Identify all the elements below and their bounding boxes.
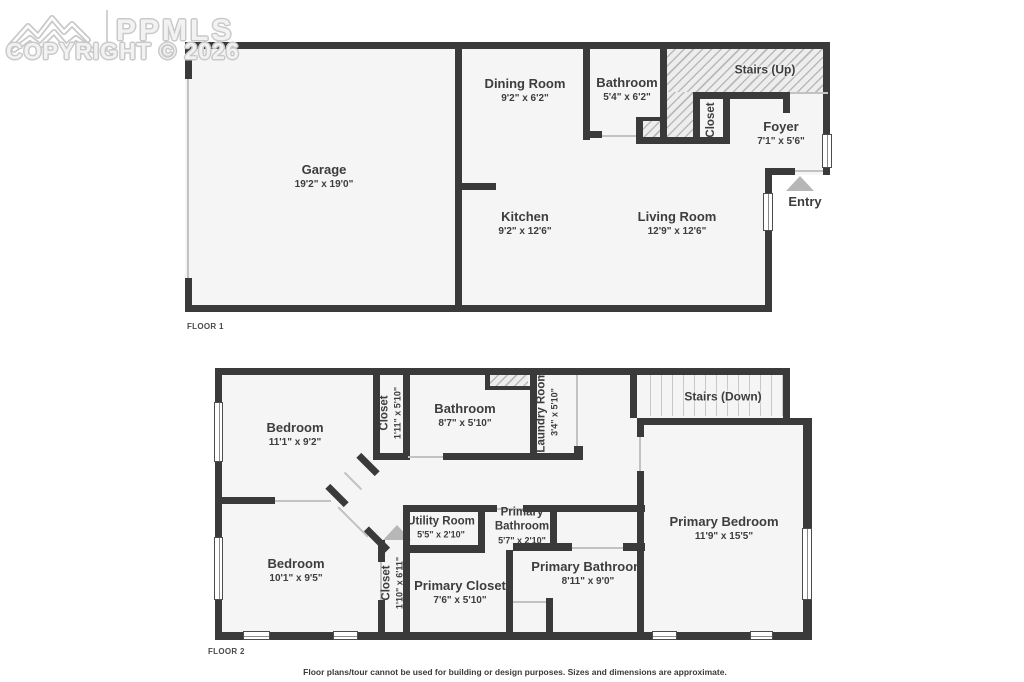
room-name: Stairs (Up)	[735, 63, 796, 78]
wall	[215, 632, 243, 640]
wall	[630, 368, 637, 418]
room-label-bedroom-lower: Bedroom 10'1" x 9'5"	[267, 556, 324, 586]
window-mullion	[653, 636, 676, 637]
wall	[637, 418, 810, 425]
opening-line	[790, 92, 828, 94]
room-dims: 5'7" x 2'10"	[476, 535, 568, 546]
room-dims: 11'9" x 15'5"	[669, 531, 778, 544]
wall	[443, 453, 583, 460]
wall	[373, 453, 408, 460]
room-name: Living Room	[638, 209, 717, 225]
room-name: Closet	[380, 557, 394, 609]
room-name: Bedroom	[267, 556, 324, 572]
room-name: Entry	[788, 194, 821, 210]
room-label-utility-room: Utility Room 5'5" x 2'10"	[407, 515, 475, 542]
wall	[823, 42, 830, 134]
wall	[765, 231, 772, 312]
wall	[583, 42, 590, 140]
room-label-primary-bedroom: Primary Bedroom 11'9" x 15'5"	[669, 514, 778, 544]
room-dims: 19'2" x 19'0"	[295, 179, 354, 192]
room-name: Closet	[378, 387, 392, 439]
room-dims: 12'9" x 12'6"	[638, 226, 717, 239]
window	[763, 193, 773, 231]
room-dims: 5'5" x 2'10"	[407, 530, 475, 541]
room-label-laundry-room: Laundry Room 3'4" x 5'10"	[535, 371, 562, 452]
window-mullion	[807, 529, 808, 599]
room-label-primary-bathroom-small: Primary Bathroom 5'7" x 2'10"	[476, 506, 568, 547]
understairs-hatch	[643, 121, 660, 137]
room-dims: 5'4" x 6'2"	[596, 92, 657, 105]
window-mullion	[244, 636, 269, 637]
door-opening	[572, 547, 623, 549]
wall	[637, 425, 644, 437]
floorplan-page: PPMLS COPYRIGHT © 2026	[0, 0, 1024, 682]
entry-door-opening	[795, 170, 823, 172]
stairs-up-hatch-lower	[667, 92, 693, 137]
wall	[215, 497, 275, 504]
wall	[783, 92, 790, 113]
room-label-entry: Entry	[788, 194, 821, 210]
wall	[185, 305, 772, 312]
wall	[403, 545, 485, 553]
room-name: Closet	[704, 102, 718, 137]
entry-arrow-icon	[786, 176, 814, 191]
wall	[462, 183, 496, 190]
room-name: Dining Room	[485, 76, 566, 92]
wall	[765, 168, 795, 175]
room-label-stairs-down: Stairs (Down)	[684, 390, 761, 405]
wall	[660, 42, 667, 140]
wall	[455, 49, 462, 305]
wall	[677, 632, 750, 640]
wall	[546, 598, 553, 633]
wall	[506, 550, 513, 633]
wall	[693, 92, 790, 99]
disclaimer-text: Floor plans/tour cannot be used for buil…	[303, 667, 727, 677]
room-dims: 9'2" x 12'6"	[498, 226, 551, 239]
wall	[215, 368, 790, 375]
room-label-stairs-up: Stairs (Up)	[735, 63, 796, 78]
wall	[765, 175, 772, 193]
window	[243, 631, 270, 640]
window	[802, 528, 812, 600]
room-dims: 1'10" x 6'11"	[395, 557, 406, 609]
room-label-closet-upper: Closet 1'11" x 5'10"	[378, 387, 405, 439]
door-opening	[602, 135, 636, 137]
window-mullion	[768, 194, 769, 230]
room-label-bathroom-f1: Bathroom 5'4" x 6'2"	[596, 75, 657, 105]
window	[214, 537, 223, 600]
room-name: Bathroom	[434, 401, 495, 417]
room-label-bedroom-upper: Bedroom 11'1" x 9'2"	[266, 420, 323, 450]
room-name: Kitchen	[498, 209, 551, 225]
window	[750, 631, 773, 640]
watermark-copyright: COPYRIGHT © 2026	[6, 38, 240, 65]
wall	[358, 632, 652, 640]
floor2-notch	[790, 368, 812, 418]
room-name: Bedroom	[266, 420, 323, 436]
room-name: Primary Bathroom	[531, 559, 644, 575]
wall	[783, 368, 790, 418]
room-name: Stairs (Down)	[684, 390, 761, 405]
room-dims: 11'1" x 9'2"	[266, 437, 323, 450]
room-label-closet-f1: Closet	[704, 102, 718, 137]
room-label-dining-room: Dining Room 9'2" x 6'2"	[485, 76, 566, 106]
room-label-primary-bathroom: Primary Bathroom 8'11" x 9'0"	[531, 559, 644, 589]
wall	[215, 368, 222, 402]
room-label-kitchen: Kitchen 9'2" x 12'6"	[498, 209, 551, 239]
room-dims: 7'6" x 5'10"	[414, 595, 506, 608]
opening-line	[576, 375, 578, 446]
room-dims: 10'1" x 9'5"	[267, 573, 324, 586]
room-dims: 3'4" x 5'10"	[550, 371, 561, 452]
room-name: Bathroom	[596, 75, 657, 91]
window-mullion	[219, 538, 220, 599]
garage-door-line	[187, 79, 189, 278]
window	[822, 134, 832, 168]
door-opening	[639, 437, 641, 471]
window	[214, 402, 223, 462]
window-mullion	[751, 636, 772, 637]
wall	[643, 117, 667, 121]
wall	[574, 446, 583, 460]
wall	[637, 471, 644, 633]
room-name: Utility Room	[407, 515, 475, 529]
wall	[590, 131, 602, 138]
shower-hatch	[490, 375, 528, 386]
wall	[623, 543, 645, 551]
room-name: Garage	[295, 162, 354, 178]
floor1-tag: FLOOR 1	[187, 322, 224, 331]
room-label-living-room: Living Room 12'9" x 12'6"	[638, 209, 717, 239]
room-name: Primary Closet	[414, 578, 506, 594]
room-name: Primary Bathroom	[476, 506, 568, 535]
wall	[485, 386, 533, 390]
room-name: Laundry Room	[535, 371, 549, 452]
room-label-primary-closet: Primary Closet 7'6" x 5'10"	[414, 578, 506, 608]
room-dims: 7'1" x 5'6"	[757, 136, 805, 149]
window	[652, 631, 677, 640]
floor2-tag: FLOOR 2	[208, 647, 245, 656]
wall	[640, 137, 730, 144]
wall	[803, 600, 812, 636]
watermark: PPMLS COPYRIGHT © 2026	[6, 4, 326, 64]
fixture-line	[513, 601, 546, 603]
door-opening	[408, 456, 443, 458]
room-dims: 9'2" x 6'2"	[485, 93, 566, 106]
window	[333, 631, 358, 640]
room-label-garage: Garage 19'2" x 19'0"	[295, 162, 354, 192]
room-name: Foyer	[757, 119, 805, 135]
room-label-foyer: Foyer 7'1" x 5'6"	[757, 119, 805, 149]
room-label-closet-lower: Closet 1'10" x 6'11"	[380, 557, 407, 609]
window-mullion	[827, 135, 828, 167]
room-label-bathroom-f2: Bathroom 8'7" x 5'10"	[434, 401, 495, 431]
wall	[823, 168, 830, 175]
window-mullion	[219, 403, 220, 461]
wall	[270, 632, 333, 640]
room-dims: 8'11" x 9'0"	[531, 576, 644, 589]
room-dims: 8'7" x 5'10"	[434, 418, 495, 431]
room-dims: 1'11" x 5'10"	[393, 387, 404, 439]
window-mullion	[334, 636, 357, 637]
door-opening	[275, 500, 331, 502]
wall	[803, 418, 812, 528]
room-name: Primary Bedroom	[669, 514, 778, 530]
